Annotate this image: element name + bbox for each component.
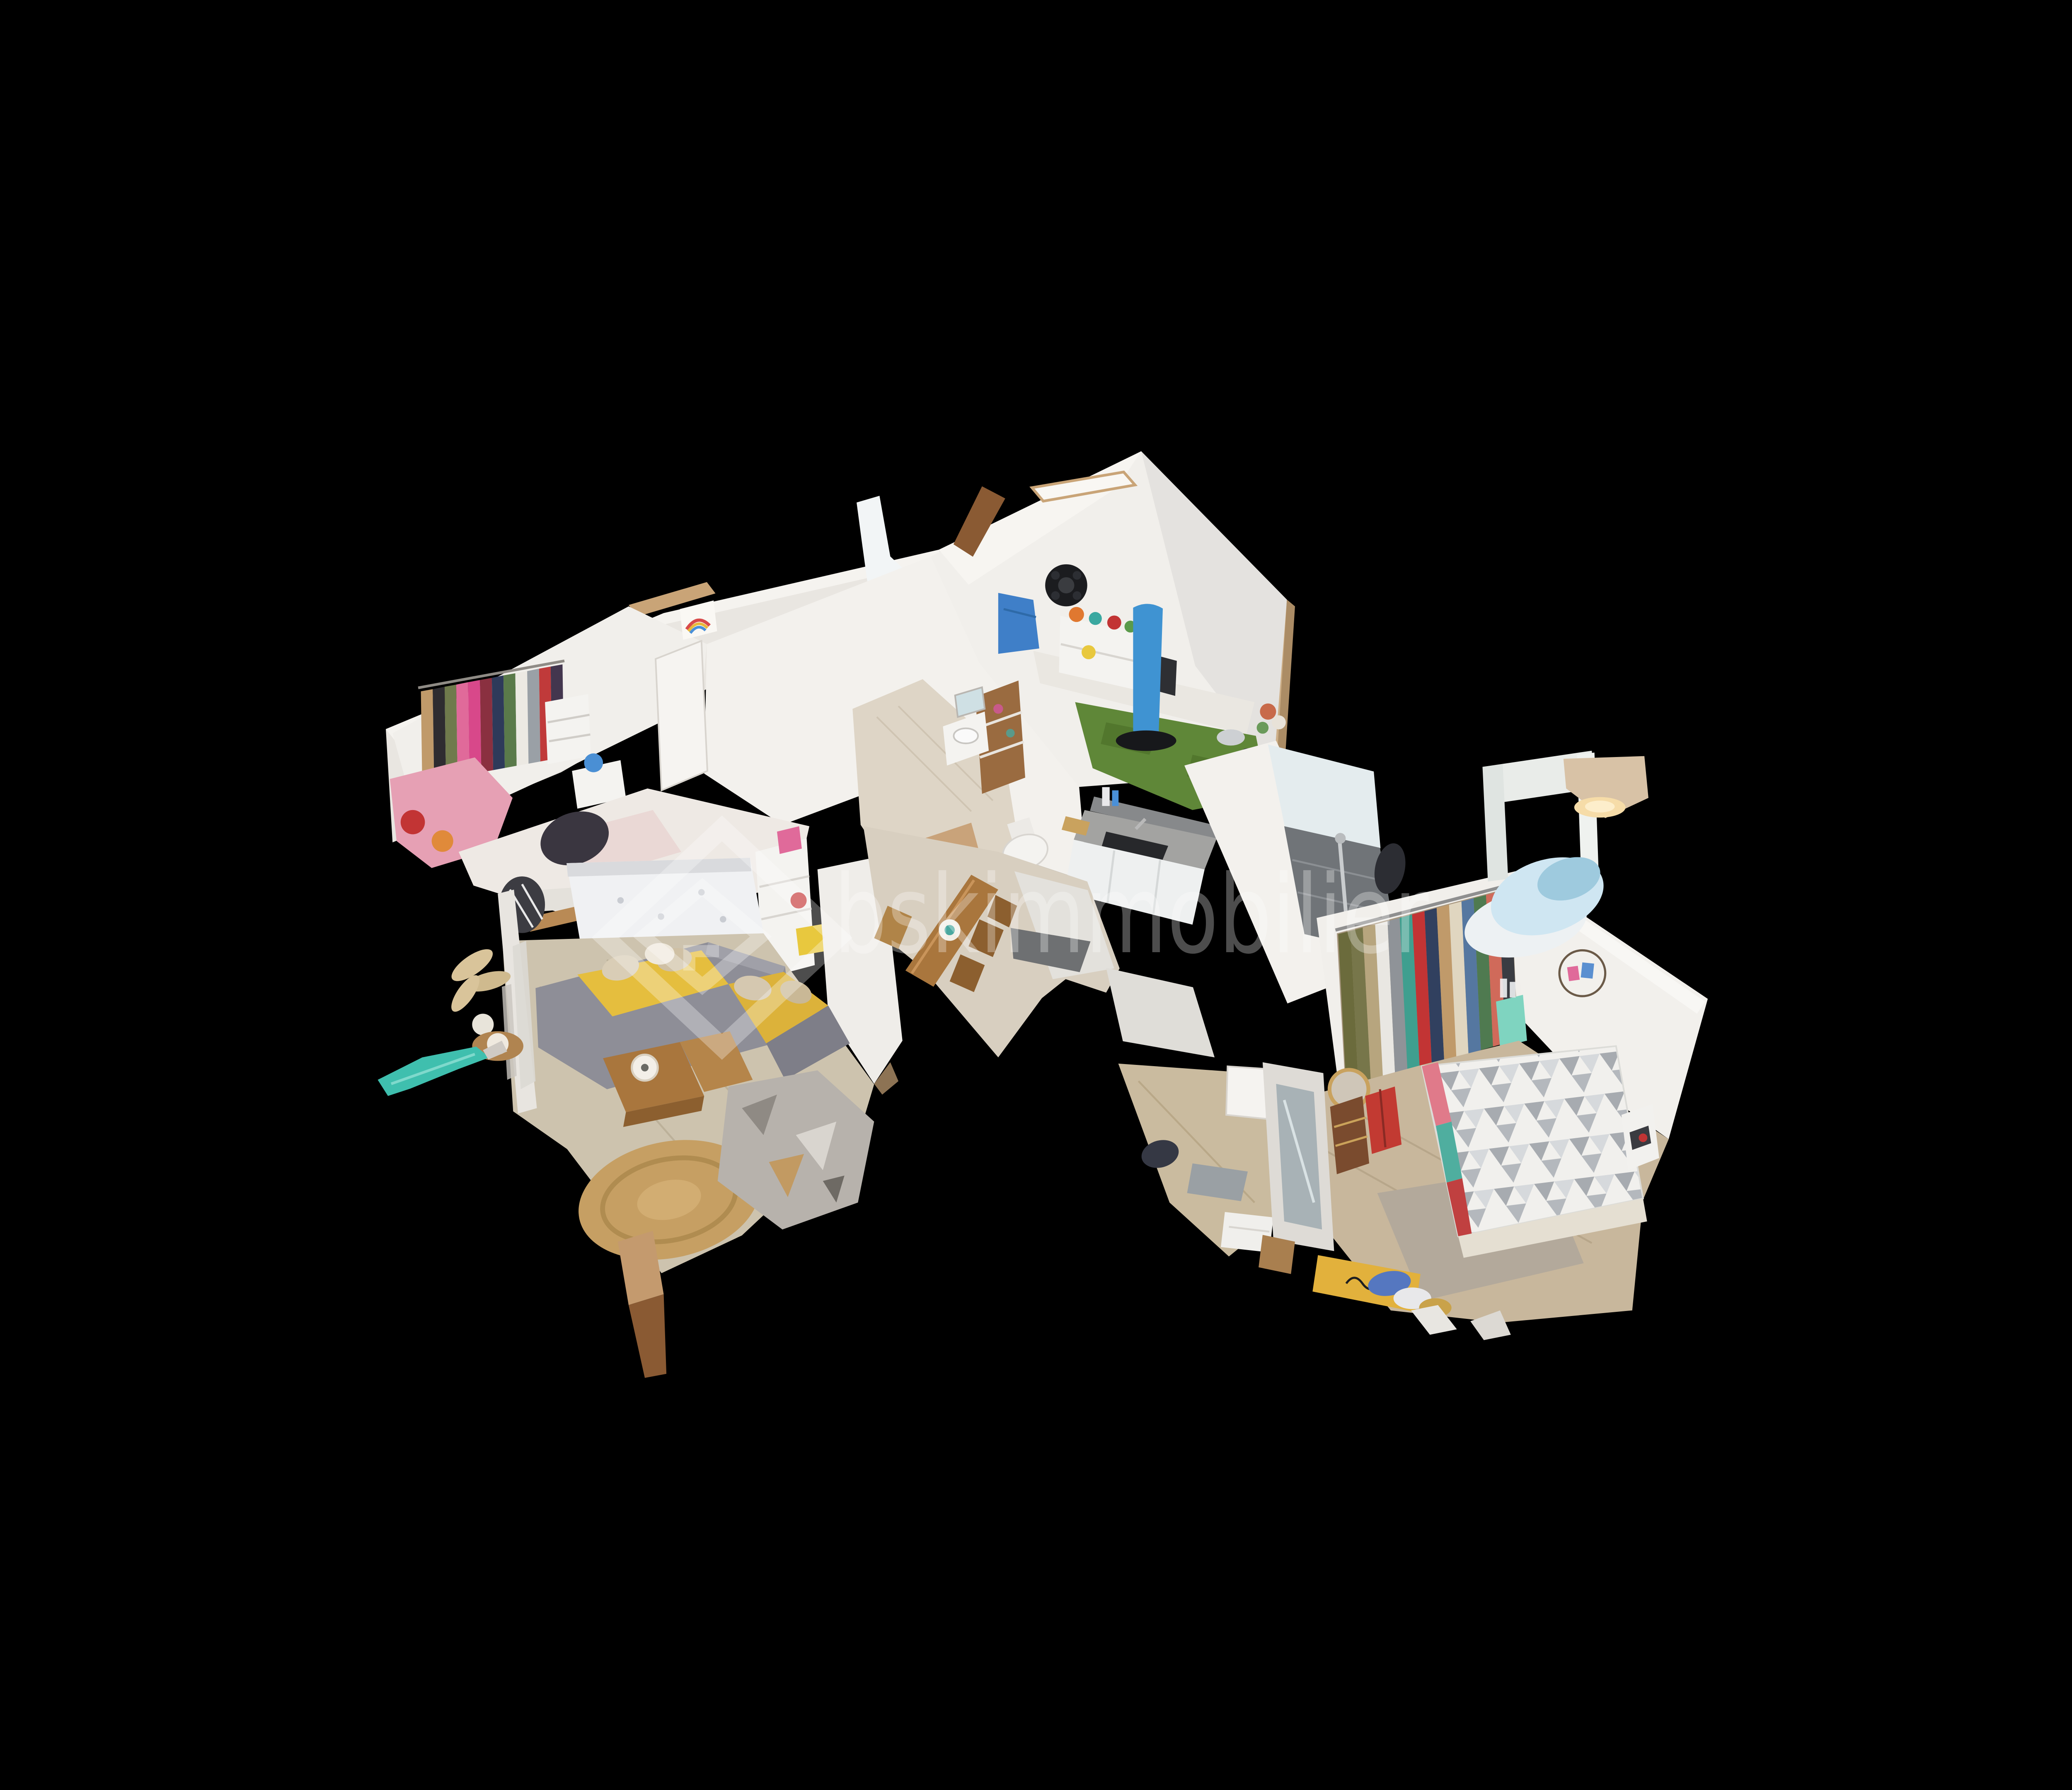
punching-bag	[1133, 604, 1163, 735]
clutter	[1272, 715, 1286, 729]
clothing-item	[527, 669, 540, 764]
toy-orange	[432, 830, 453, 852]
clutter	[1260, 704, 1276, 720]
bottle	[1112, 790, 1119, 806]
decor-card-blue	[1581, 963, 1594, 979]
stitch-plush	[584, 753, 603, 772]
clothing-item	[503, 673, 517, 768]
punching-bag-base	[1116, 731, 1176, 751]
toy	[1107, 616, 1121, 630]
target-pad	[1051, 571, 1060, 580]
water-bottle	[1510, 982, 1515, 998]
toy-gray	[1217, 729, 1245, 745]
watermark-text: bskimmobilier	[834, 852, 1428, 978]
target-center	[1058, 577, 1074, 593]
nightstand-item	[1639, 1134, 1647, 1142]
mint-stool	[1496, 995, 1527, 1047]
sink-basin	[954, 728, 978, 743]
target-pad	[1073, 591, 1082, 600]
clutter	[1257, 722, 1269, 734]
target-pad	[1073, 571, 1082, 580]
corridor-door	[1226, 1066, 1268, 1119]
water-bottle	[1500, 979, 1507, 998]
toy-red	[401, 810, 425, 835]
shelf-item	[993, 704, 1003, 714]
lamp-glow-bright	[1585, 801, 1615, 813]
target-pad	[1051, 591, 1060, 600]
toy	[1069, 607, 1084, 622]
blue-bedding	[998, 593, 1039, 654]
clothing-item	[480, 678, 493, 772]
clothing-item	[492, 675, 505, 770]
watermark-text-group: bskimmobilier	[834, 852, 1428, 978]
bottle	[1102, 787, 1110, 806]
decor-card-pink	[1567, 966, 1580, 981]
clothing-item	[515, 671, 528, 766]
closet-door	[656, 641, 707, 791]
floral-speckle	[617, 897, 624, 904]
toy	[1089, 612, 1102, 625]
white-dresser	[545, 694, 591, 764]
small-dresser	[1330, 1096, 1369, 1174]
dollhouse-3d-view[interactable]: bskimmobilier	[0, 0, 2072, 1790]
shower-head	[1335, 833, 1346, 844]
pikachu-toy	[1082, 645, 1096, 659]
floral-speckle	[720, 916, 726, 923]
shelf-item	[1006, 729, 1015, 738]
wood-beam	[1259, 1235, 1295, 1274]
candle-wick	[641, 1064, 649, 1072]
